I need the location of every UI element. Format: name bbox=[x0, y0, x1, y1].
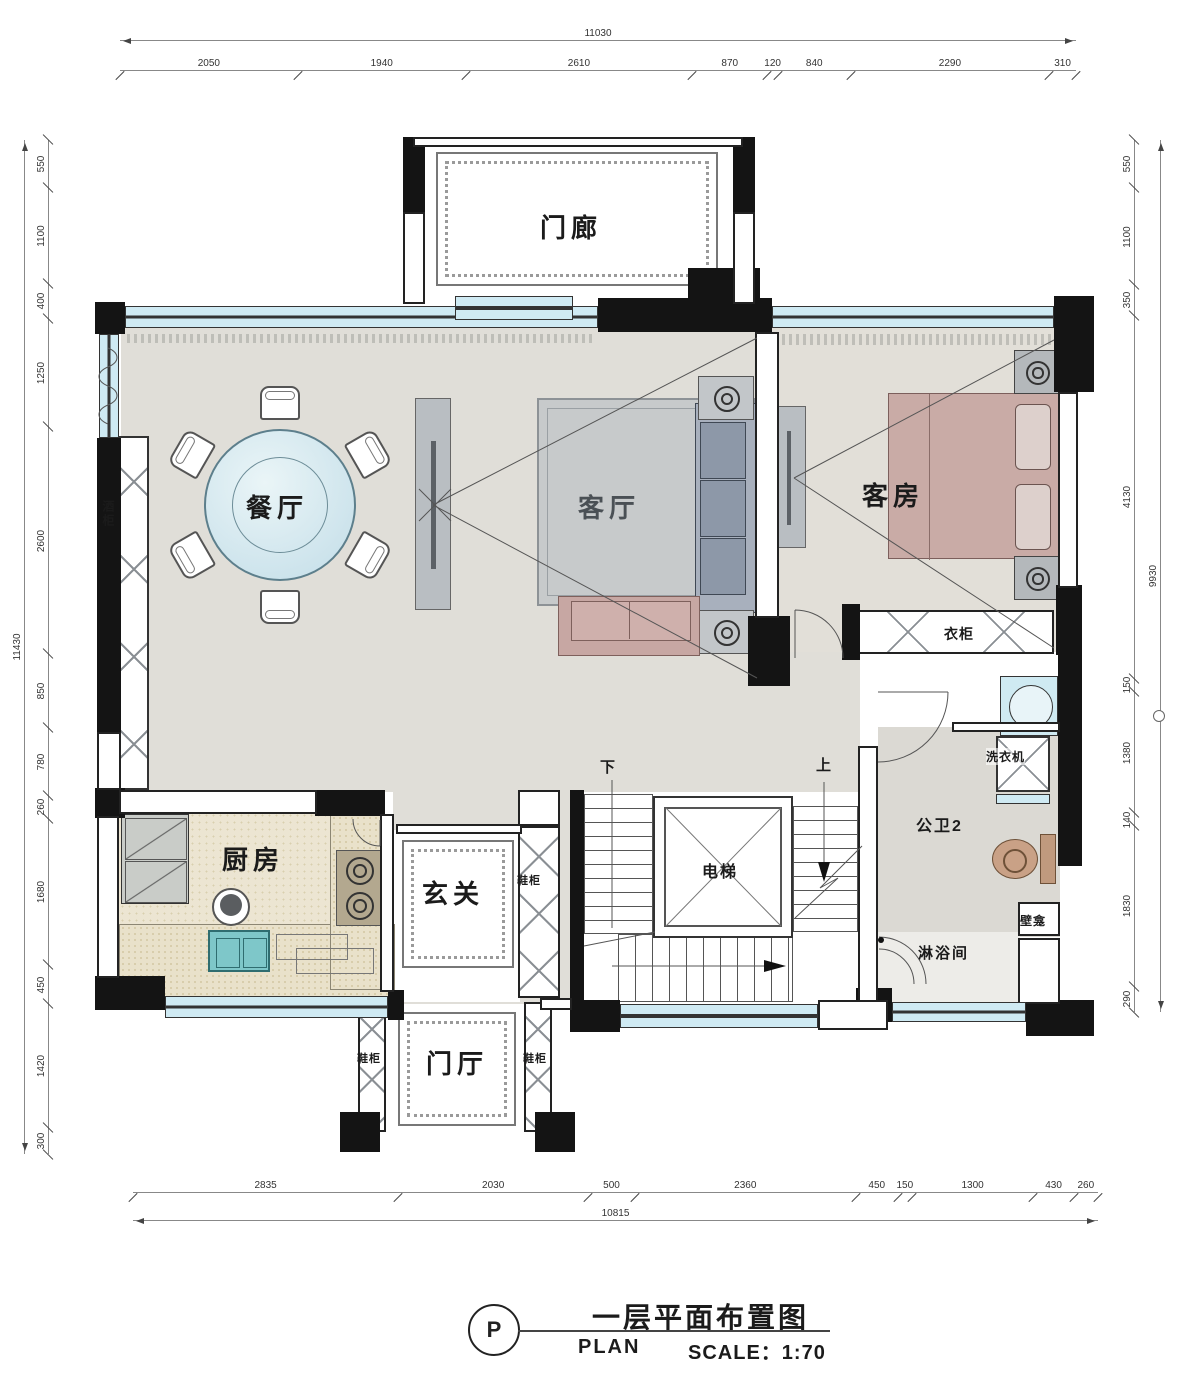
dim-left-segments: 550 1100 400 1250 2600 850 780 260 1680 … bbox=[34, 140, 49, 1154]
axis-marker bbox=[1153, 710, 1165, 722]
dim-segment: 350 bbox=[1120, 285, 1134, 316]
label-niche: 壁龛 bbox=[1020, 912, 1046, 929]
dim-segment: 150 bbox=[898, 1181, 912, 1192]
plan-label: PLAN bbox=[578, 1336, 640, 1359]
stair-arrow-down bbox=[818, 862, 830, 882]
plan-mark: P bbox=[487, 1317, 502, 1343]
label-porch: 门廊 bbox=[540, 208, 602, 245]
dim-top-segments: 2050 1940 2610 870 120 840 2290 310 bbox=[120, 54, 1076, 71]
stair-diagonal bbox=[584, 932, 655, 946]
label-foyer: 门厅 bbox=[426, 1044, 488, 1081]
dim-segment: 1100 bbox=[34, 188, 48, 284]
stair-arrow-right bbox=[764, 960, 786, 972]
dim-segment: 550 bbox=[34, 140, 48, 188]
dim-segment: 2050 bbox=[120, 59, 298, 70]
floor-plan-page: { "title_block": { "mark": "P", "title":… bbox=[0, 0, 1200, 1400]
dim-segment: 850 bbox=[34, 654, 48, 728]
label-shoe-left: 鞋柜 bbox=[357, 1050, 381, 1066]
label-entry: 玄关 bbox=[422, 874, 484, 911]
dim-segment: 870 bbox=[692, 59, 767, 70]
label-guest: 客房 bbox=[862, 476, 924, 513]
dim-segment: 260 bbox=[1074, 1181, 1098, 1192]
bath-door-arc bbox=[878, 692, 948, 762]
dim-segment: 1250 bbox=[34, 319, 48, 428]
shower-head bbox=[878, 937, 884, 943]
dim-segment: 1940 bbox=[298, 59, 466, 70]
dim-segment: 550 bbox=[1120, 140, 1134, 188]
radiator-coil bbox=[99, 348, 117, 424]
dim-segment: 310 bbox=[1049, 59, 1076, 70]
dim-top-total: 11030 bbox=[120, 24, 1076, 41]
label-wine-cabinet: 酒柜 bbox=[100, 500, 117, 528]
dim-segment: 290 bbox=[1120, 987, 1134, 1012]
label-stair-down: 下 bbox=[600, 756, 617, 777]
dim-segment: 4130 bbox=[1120, 316, 1134, 679]
dim-segment: 2290 bbox=[851, 59, 1049, 70]
dim-segment: 400 bbox=[34, 284, 48, 319]
dim-segment: 840 bbox=[778, 59, 851, 70]
dim-segment: 500 bbox=[588, 1181, 635, 1192]
dim-segment: 1830 bbox=[1120, 826, 1134, 987]
title-underline bbox=[518, 1330, 830, 1332]
dim-segment: 450 bbox=[34, 965, 48, 1004]
dim-segment: 2610 bbox=[466, 59, 692, 70]
dim-segment: 450 bbox=[856, 1181, 898, 1192]
label-washer: 洗衣机 bbox=[986, 748, 1025, 765]
plan-scale: SCALE：1:70 bbox=[688, 1336, 826, 1365]
dim-bottom-total: 10815 bbox=[133, 1204, 1098, 1221]
label-kitchen: 厨房 bbox=[222, 840, 284, 877]
label-living: 客厅 bbox=[578, 488, 640, 525]
plan-mark-circle: P bbox=[468, 1304, 520, 1356]
label-bath: 公卫2 bbox=[916, 812, 963, 836]
dim-segment: 1380 bbox=[1120, 692, 1134, 813]
stair-break-line bbox=[795, 846, 862, 918]
tv-cross bbox=[419, 489, 451, 521]
dim-segment: 780 bbox=[34, 728, 48, 796]
dim-left-total: 11430 bbox=[10, 140, 25, 1154]
dim-segment: 1100 bbox=[1120, 188, 1134, 285]
guest-door-arc bbox=[795, 610, 843, 658]
label-dining: 餐厅 bbox=[246, 488, 308, 525]
dim-segment: 2030 bbox=[398, 1181, 588, 1192]
dim-segment: 300 bbox=[34, 1128, 48, 1154]
dim-segment: 1680 bbox=[34, 819, 48, 965]
stair-down-line bbox=[612, 780, 764, 966]
label-shower: 淋浴间 bbox=[918, 942, 969, 963]
label-shoe-entry: 鞋柜 bbox=[517, 872, 541, 888]
dim-segment: 2360 bbox=[635, 1181, 856, 1192]
dim-segment: 2600 bbox=[34, 427, 48, 654]
dim-segment: 2835 bbox=[133, 1181, 398, 1192]
dim-segment: 430 bbox=[1033, 1181, 1073, 1192]
label-shoe-right: 鞋柜 bbox=[523, 1050, 547, 1066]
label-stair-up: 上 bbox=[816, 754, 833, 775]
label-elevator: 电梯 bbox=[702, 858, 738, 882]
dim-segment: 120 bbox=[767, 59, 777, 70]
label-wardrobe: 衣柜 bbox=[944, 624, 974, 644]
kitchen-door-arc bbox=[353, 819, 380, 846]
dim-bottom-segments: 2835 2030 500 2360 450 150 1300 430 260 bbox=[133, 1176, 1098, 1193]
dim-segment: 1420 bbox=[34, 1004, 48, 1128]
dim-segment: 1300 bbox=[912, 1181, 1034, 1192]
dim-right-segments: 550 1100 350 4130 150 1380 140 1830 290 bbox=[1120, 140, 1135, 1012]
dim-right-total: 9930 bbox=[1146, 140, 1161, 1012]
